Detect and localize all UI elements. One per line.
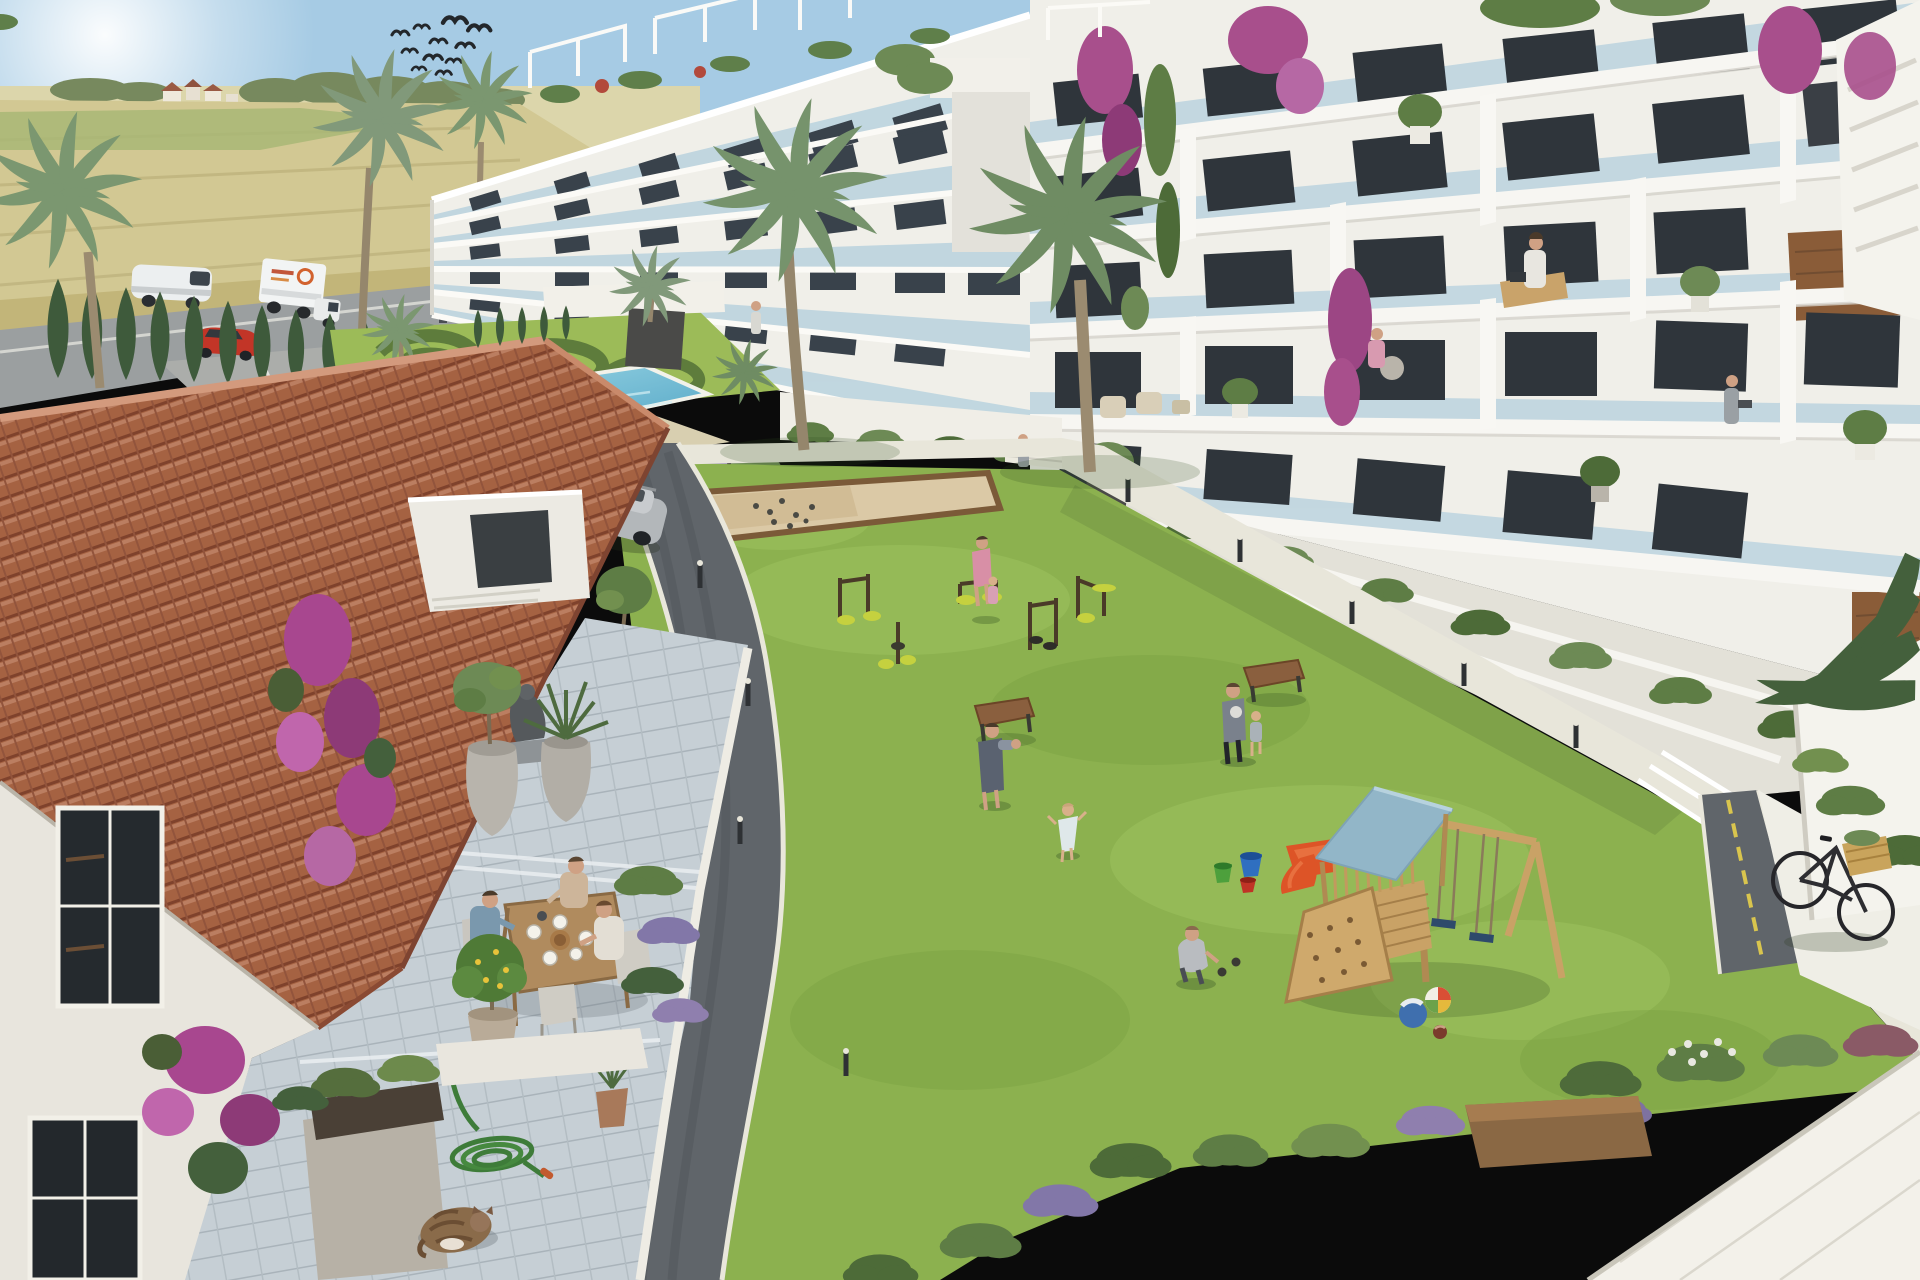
house-window-upper xyxy=(58,808,162,1006)
garage-annex xyxy=(408,492,590,612)
house-window-lower xyxy=(30,1118,140,1280)
render-image xyxy=(0,0,1920,1280)
external-staircase xyxy=(1836,0,1920,320)
palm-planter-cube xyxy=(625,308,685,370)
red-flower-pot xyxy=(595,79,609,93)
teapot xyxy=(537,911,547,921)
scene-canvas xyxy=(0,0,1920,1280)
walker-upper-garden xyxy=(751,301,761,334)
